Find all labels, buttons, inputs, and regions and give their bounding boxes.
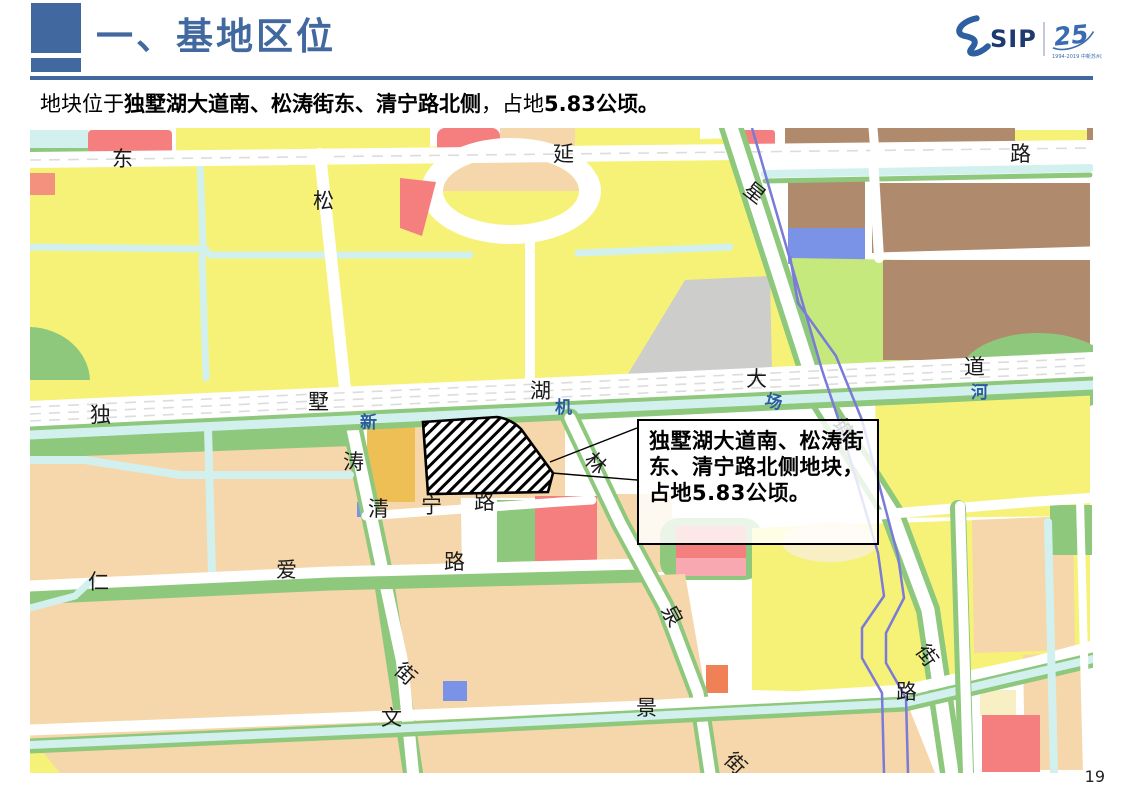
subtitle-roads: 独墅湖大道南、松涛街东、清宁路北侧 (124, 92, 481, 116)
logo-small-text: 1994-2019 中新苏州工业园区 (1052, 53, 1102, 60)
page-number: 19 (1085, 767, 1105, 786)
svg-text:25: 25 (1052, 19, 1090, 51)
road-label: 爱 (276, 558, 297, 582)
road-label: 道 (964, 355, 985, 379)
road-label: 河 (971, 383, 988, 403)
road-label: 路 (896, 680, 917, 704)
road-label: 湖 (530, 379, 551, 403)
page-title: 一、基地区位 (96, 6, 336, 60)
sip-logo-text: SIP (990, 25, 1037, 53)
sip-25-anniversary-mark: 25 (1050, 19, 1095, 52)
subtitle-suffix: 公顷。 (596, 92, 659, 116)
title-underline (30, 76, 1093, 80)
subtitle-area-value: 5.83 (544, 92, 596, 116)
road-label: 路 (444, 550, 465, 574)
road-label: 景 (636, 696, 657, 720)
road-label: 东 (112, 147, 133, 171)
land-use-map: 东延路松星独墅湖大道新机场河涛塘清宁路林仁爱路泉街文景街街路 (30, 128, 1093, 773)
road-label: 新 (360, 412, 377, 433)
title-decoration-bar (31, 58, 81, 72)
subtitle-mid: ，占地 (481, 92, 544, 116)
road-label: 仁 (88, 570, 109, 594)
callout-text: 独墅湖大道南、松涛街东、清宁路北侧地块，占地5.83公顷。 (649, 429, 864, 505)
subtitle-prefix: 地块位于 (40, 92, 124, 116)
road-label: 宁 (421, 494, 442, 518)
road-label: 清 (368, 497, 389, 521)
road-label: 延 (553, 142, 574, 166)
sip-logo: SIP 25 1994-2019 中新苏州工业园区 (952, 14, 1102, 64)
sip-s-icon (957, 17, 989, 56)
road-label: 文 (381, 706, 402, 730)
road-label: 墅 (308, 390, 329, 414)
location-subtitle: 地块位于独墅湖大道南、松涛街东、清宁路北侧，占地5.83公顷。 (40, 88, 659, 118)
callout-box: 独墅湖大道南、松涛街东、清宁路北侧地块，占地5.83公顷。 (637, 419, 879, 545)
road-label: 松 (313, 189, 334, 213)
road-label: 独 (90, 403, 111, 427)
title-decoration-square (31, 3, 81, 53)
road-label: 机 (555, 397, 572, 418)
road-label: 路 (1010, 142, 1031, 166)
road-label: 大 (746, 367, 767, 391)
road-label: 涛 (343, 450, 364, 474)
